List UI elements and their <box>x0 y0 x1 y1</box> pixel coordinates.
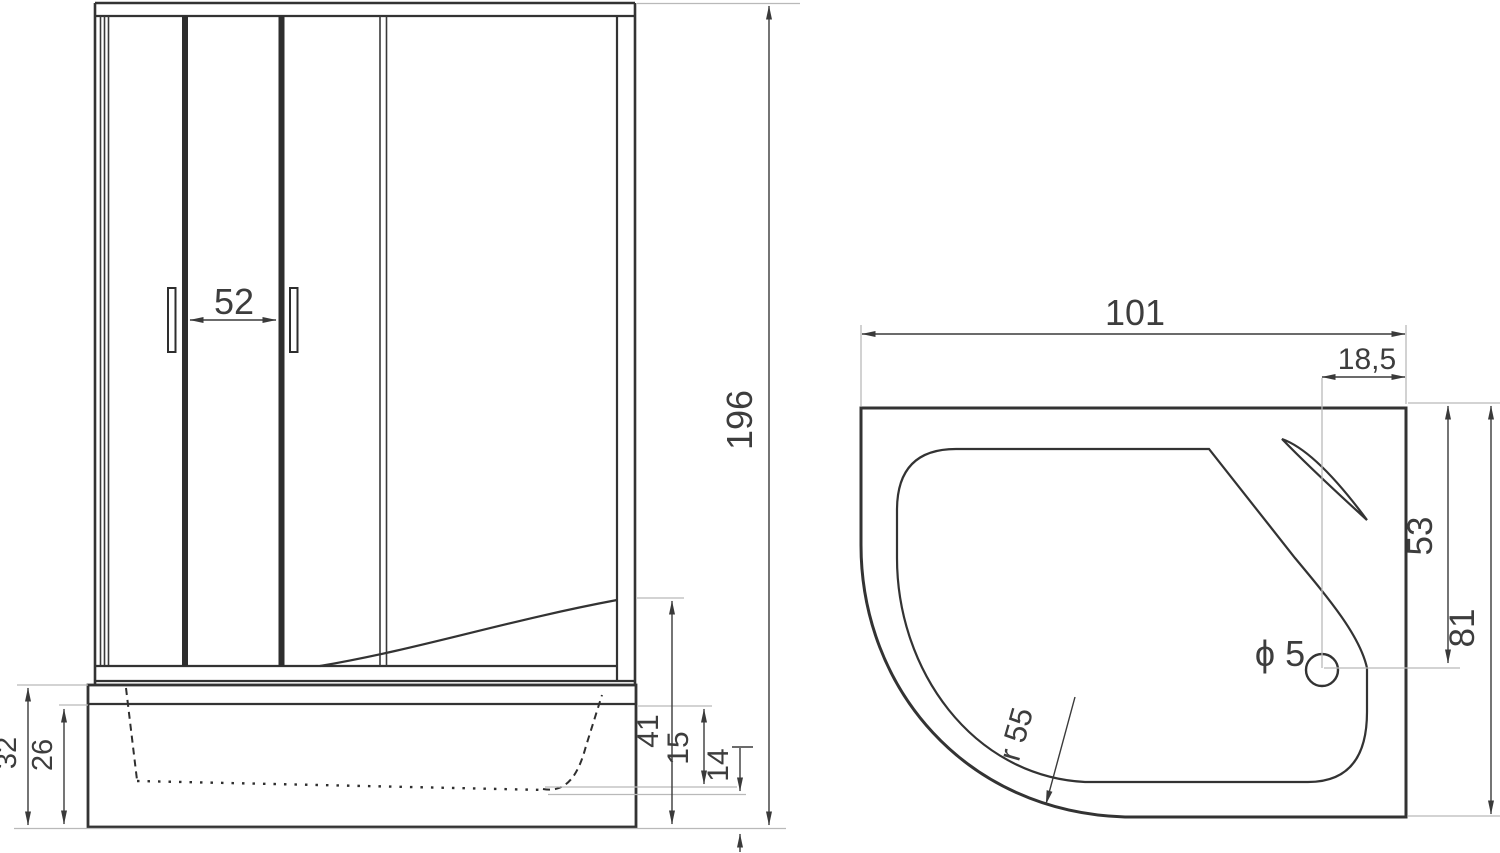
door-handle-right <box>290 288 298 352</box>
technical-drawing-shower-cabin: 52 196 32 26 41 15 14 <box>0 0 1500 853</box>
dim-basin-floor-clearance: 14 <box>702 748 740 791</box>
dim-drain-depth: 53 <box>1401 406 1448 663</box>
dim-label-41: 41 <box>632 714 665 747</box>
basin-inner-outline <box>897 449 1367 782</box>
dim-label-26: 26 <box>27 739 59 771</box>
sliding-doors <box>168 16 617 666</box>
dim-tray-total-height: 32 <box>0 688 28 825</box>
dim-drain-diameter: ϕ 5 <box>1255 633 1305 674</box>
dim-label-101: 101 <box>1105 292 1165 333</box>
corner-shelf-crescent <box>1282 439 1367 520</box>
dim-label-53: 53 <box>1401 517 1440 556</box>
dim-label-185: 18,5 <box>1338 343 1396 376</box>
tray-outline-front <box>88 685 636 827</box>
tray-hidden-bottom <box>137 781 545 790</box>
dim-drain-offset: 18,5 <box>1322 343 1405 377</box>
dim-tray-panel-height: 26 <box>27 709 64 824</box>
tray-hidden-right <box>543 695 602 790</box>
glass-curve <box>320 600 617 666</box>
top-view: 101 18,5 53 81 r 55 ϕ 5 <box>861 292 1500 817</box>
front-view: 52 196 32 26 41 15 14 <box>0 3 800 852</box>
dim-label-81: 81 <box>1443 609 1482 648</box>
dim-door-width: 52 <box>190 281 276 322</box>
top-extension-lines <box>861 325 1500 816</box>
dim-label-14: 14 <box>702 748 735 781</box>
dim-label-r55: r 55 <box>992 704 1040 765</box>
dim-label-phi5: ϕ 5 <box>1255 633 1305 674</box>
radius-leader-line <box>1046 697 1075 804</box>
door-rail-left <box>182 16 188 666</box>
dim-label-196: 196 <box>719 390 760 450</box>
dim-overall-width: 101 <box>862 292 1405 334</box>
tray-hidden-left <box>126 688 137 780</box>
door-handle-left <box>168 288 176 352</box>
dim-rim-to-floor: 41 <box>632 601 672 824</box>
shower-tray-front <box>88 685 636 827</box>
door-rail-right <box>279 16 285 666</box>
dim-label-32: 32 <box>0 737 23 769</box>
drawing-canvas: 52 196 32 26 41 15 14 <box>0 0 1500 853</box>
shower-tray-top <box>861 408 1406 817</box>
dim-overall-depth: 81 <box>1443 406 1491 814</box>
dim-basin-inner-depth: 15 <box>662 709 704 784</box>
dim-label-15: 15 <box>662 731 695 764</box>
dim-overall-height: 196 <box>719 6 769 825</box>
dim-label-52: 52 <box>214 281 254 322</box>
